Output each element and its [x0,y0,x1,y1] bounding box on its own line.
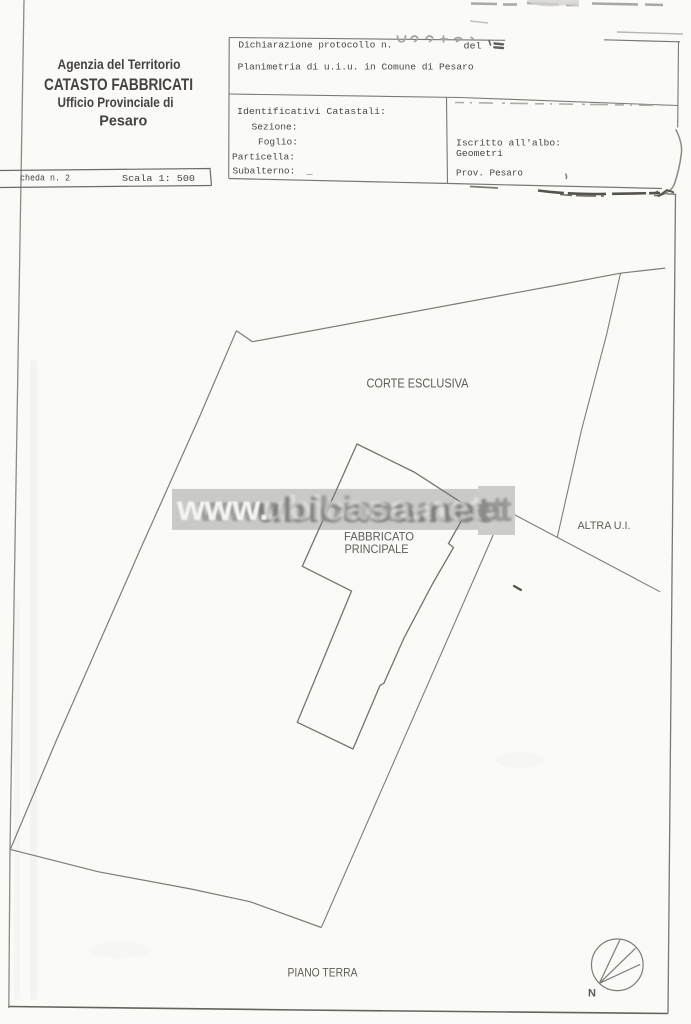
svg-text:Agenzia del Territorio: Agenzia del Territorio [58,57,181,72]
svg-text:CATASTO FABBRICATI: CATASTO FABBRICATI [44,76,193,94]
svg-text:Sezione:: Sezione: [252,122,298,133]
svg-text:Subalterno: _: Subalterno: _ [233,166,313,177]
svg-text:ALTRA U.I.: ALTRA U.I. [578,520,631,532]
svg-text:PRINCIPALE: PRINCIPALE [345,544,409,556]
svg-text:FABBRICATO: FABBRICATO [344,532,414,544]
svg-text:cheda n. 2: cheda n. 2 [20,174,70,184]
svg-text:Pesaro: Pesaro [99,114,147,130]
svg-text:PIANO TERRA: PIANO TERRA [288,968,358,980]
svg-text:ubicasa.net: ubicasa.net [262,489,483,528]
svg-text:Foglio:: Foglio: [258,137,298,148]
svg-text:del: del [464,41,482,52]
svg-text:N: N [588,988,596,1000]
svg-text:Ufficio Provinciale di: Ufficio Provinciale di [58,94,174,110]
svg-text:Scala 1: 500: Scala 1: 500 [122,174,195,184]
svg-text:CORTE ESCLUSIVA: CORTE ESCLUSIVA [367,376,469,391]
svg-text:Prov. Pesaro: Prov. Pesaro [456,168,523,179]
svg-text:Dichiarazione protocollo n.: Dichiarazione protocollo n. [238,40,392,51]
svg-text:Planimetria di u.i.u. in Comun: Planimetria di u.i.u. in Comune di Pesar… [238,62,474,73]
svg-text:Particella:: Particella: [232,152,295,163]
svg-text:Iscritto all'albo:: Iscritto all'albo: [456,138,561,149]
svg-text:Geometri: Geometri [456,148,503,159]
svg-text:www.: www. [176,489,269,528]
svg-text:et: et [477,490,512,529]
svg-text:Identificativi Catastali:: Identificativi Catastali: [237,106,386,117]
